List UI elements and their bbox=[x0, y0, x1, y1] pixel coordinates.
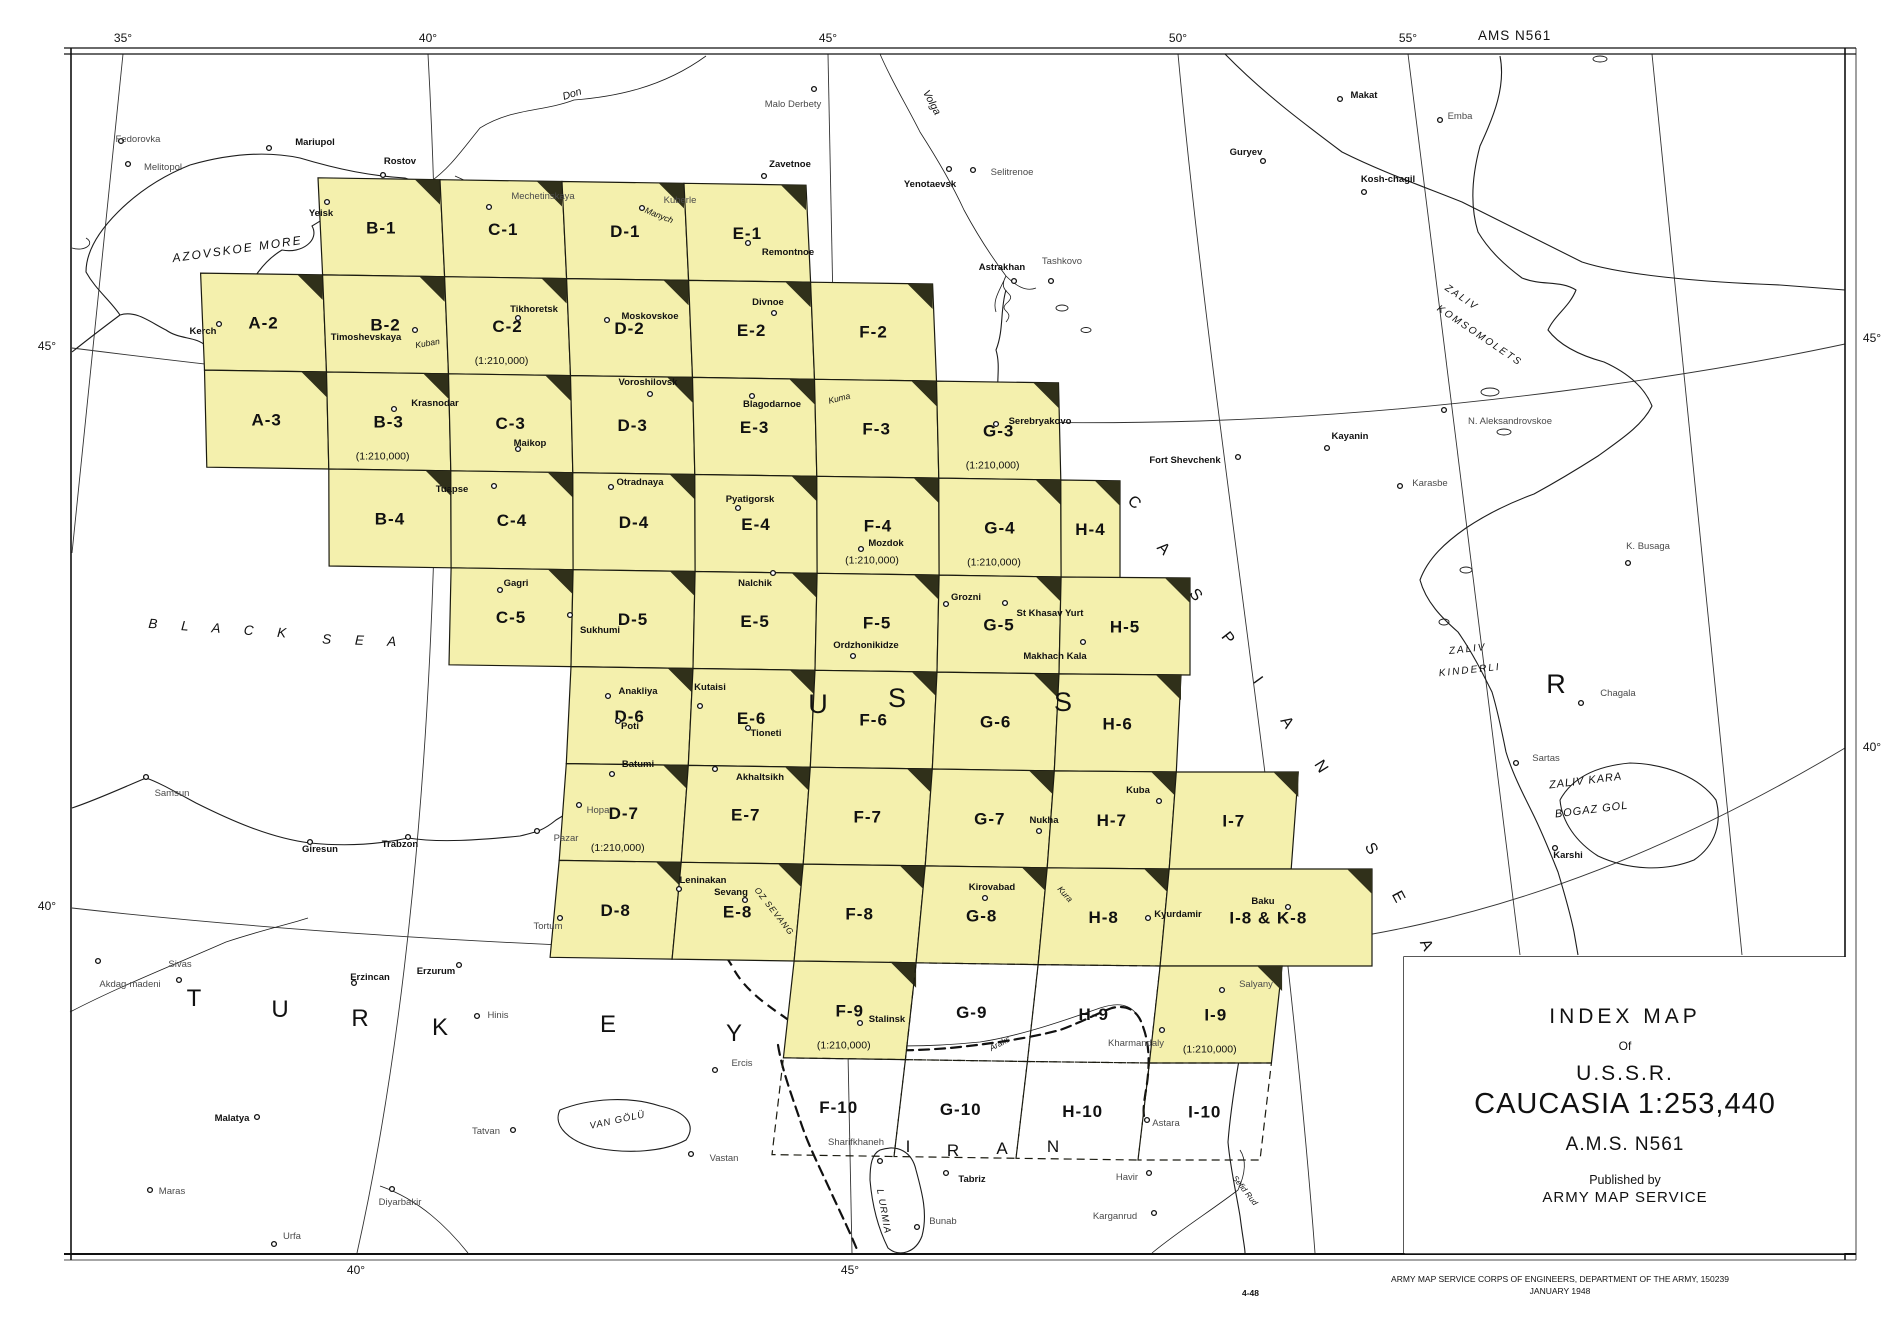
region-letter-caspian: E bbox=[1388, 888, 1408, 905]
region-letter-caspian: P bbox=[1218, 629, 1238, 648]
index-cell-label-D-3: D-3 bbox=[617, 416, 647, 435]
index-cell-label-F-9: F-9 bbox=[836, 1001, 865, 1020]
region-letter-turkey: E bbox=[600, 1011, 616, 1038]
region-letter-turkey: Y bbox=[726, 1020, 742, 1047]
index-cell-label-E-7: E-7 bbox=[731, 806, 760, 825]
city-label-Maikop: Maikop bbox=[514, 438, 547, 449]
sea-label-AZOVSKOE MORE: AZOVSKOE MORE bbox=[170, 233, 303, 265]
index-cell-label-F-5: F-5 bbox=[863, 614, 892, 633]
scale-note-C-2: (1:210,000) bbox=[475, 355, 529, 367]
region-letter-caspian: A bbox=[1277, 713, 1297, 732]
index-cell-label-D-8: D-8 bbox=[600, 901, 630, 920]
island bbox=[1593, 56, 1607, 62]
index-cell-label-E-6: E-6 bbox=[737, 709, 766, 728]
city-dot-Kuberle bbox=[640, 206, 645, 211]
region-letter-iran: R bbox=[947, 1141, 959, 1160]
river-don bbox=[430, 56, 706, 182]
index-cell-label-H-10: H-10 bbox=[1062, 1102, 1103, 1121]
city-label-Kutaisi: Kutaisi bbox=[694, 682, 726, 693]
index-cell-label-G-8: G-8 bbox=[966, 906, 997, 925]
region-letter-ussr: S bbox=[1054, 687, 1072, 717]
city-label-Bunab: Bunab bbox=[929, 1216, 956, 1227]
island bbox=[1497, 429, 1511, 435]
sea-label-KINDERLI: KINDERLI bbox=[1438, 662, 1501, 679]
city-label-Serebryakovo: Serebryakovo bbox=[1009, 416, 1072, 427]
city-label-Samsun: Samsun bbox=[155, 788, 190, 799]
city-dot-Havir bbox=[1147, 1171, 1152, 1176]
city-dot-Karganrud bbox=[1152, 1211, 1157, 1216]
region-letter-caspian: N bbox=[1311, 757, 1332, 776]
city-label-Pazar: Pazar bbox=[554, 833, 579, 844]
city-dot-Grozni bbox=[944, 602, 949, 607]
city-dot-Sukhumi bbox=[568, 613, 573, 618]
meridian-35 bbox=[72, 54, 123, 553]
index-cell-label-F-6: F-6 bbox=[859, 711, 888, 730]
city-label-Chagala: Chagala bbox=[1600, 688, 1636, 699]
city-dot-Divnoe bbox=[772, 311, 777, 316]
city-label-Kerch: Kerch bbox=[190, 326, 217, 337]
city-label-Maras: Maras bbox=[159, 1186, 186, 1197]
city-dot-Stalinsk bbox=[858, 1021, 863, 1026]
city-dot-Kerch bbox=[217, 322, 222, 327]
city-dot-Otradnaya bbox=[609, 485, 614, 490]
graticule-label-right: 45° bbox=[1863, 331, 1881, 345]
city-label-St Khasav Yurt: St Khasav Yurt bbox=[1017, 608, 1085, 619]
sea-label-KOMSOMOLETS: KOMSOMOLETS bbox=[1435, 303, 1524, 368]
city-label-Baku: Baku bbox=[1251, 896, 1274, 907]
graticule-label-top: 50° bbox=[1169, 31, 1187, 45]
title-published-by: Published by bbox=[1404, 1173, 1846, 1187]
region-letter-caspian: I bbox=[1249, 674, 1265, 688]
city-dot-Tatvan bbox=[511, 1128, 516, 1133]
city-dot-Bunab bbox=[915, 1225, 920, 1230]
graticule-label-left: 45° bbox=[38, 339, 56, 353]
city-label-Tortum: Tortum bbox=[533, 921, 562, 932]
city-dot-Fort Shevchenk bbox=[1236, 455, 1241, 460]
city-dot-Ercis bbox=[713, 1068, 718, 1073]
index-cell-label-G-6: G-6 bbox=[980, 712, 1011, 731]
city-dot-Blagodarnoe bbox=[750, 394, 755, 399]
index-cell-label-F-4: F-4 bbox=[864, 517, 893, 536]
city-label-Melitopol: Melitopol bbox=[144, 162, 182, 173]
city-dot-Tuapse bbox=[492, 484, 497, 489]
city-label-Sukhumi: Sukhumi bbox=[580, 625, 620, 636]
city-dot-Nalchik bbox=[771, 571, 776, 576]
index-cell-label-I-7: I-7 bbox=[1222, 812, 1245, 831]
index-cell-label-D-7: D-7 bbox=[609, 804, 639, 823]
index-cell-label-I-8 & K-8: I-8 & K-8 bbox=[1229, 909, 1307, 928]
city-label-Kuberle: Kuberle bbox=[664, 195, 697, 206]
region-letter-ussr: R bbox=[1546, 669, 1566, 699]
index-cell-label-G-7: G-7 bbox=[974, 809, 1005, 828]
graticule-label-top: 45° bbox=[819, 31, 837, 45]
city-dot-Poti bbox=[616, 719, 621, 724]
city-label-Fedorovka: Fedorovka bbox=[116, 134, 162, 145]
city-dot-St Khasav Yurt bbox=[1003, 601, 1008, 606]
city-dot-Selitrenoe bbox=[971, 168, 976, 173]
graticule-label-left: 40° bbox=[38, 899, 56, 913]
city-dot-Makat bbox=[1338, 97, 1343, 102]
city-label-Urfa: Urfa bbox=[283, 1231, 302, 1242]
index-cell-label-H-8: H-8 bbox=[1088, 908, 1118, 927]
city-label-Fort Shevchenk: Fort Shevchenk bbox=[1149, 455, 1221, 466]
city-dot-Mariupol bbox=[267, 146, 272, 151]
fineprint-line1: ARMY MAP SERVICE CORPS OF ENGINEERS, DEP… bbox=[1330, 1274, 1790, 1284]
city-dot-Krasnodar bbox=[392, 407, 397, 412]
city-dot-Guryev bbox=[1261, 159, 1266, 164]
region-letter-iran: A bbox=[996, 1139, 1008, 1158]
sea-label-S E A: S E A bbox=[322, 632, 406, 650]
index-cell-label-E-8: E-8 bbox=[723, 903, 752, 922]
city-dot-Nukha bbox=[1037, 829, 1042, 834]
graticule-label-top: 40° bbox=[419, 31, 437, 45]
index-cell-label-H-4: H-4 bbox=[1075, 520, 1105, 539]
index-map-screenshot: 35°40°45°50°55°40°45°45°40°45°40° B-1C-1… bbox=[0, 0, 1900, 1325]
index-cell-label-F-8: F-8 bbox=[845, 904, 874, 923]
city-label-Sartas: Sartas bbox=[1532, 753, 1560, 764]
city-dot-Makhach Kala bbox=[1081, 640, 1086, 645]
island bbox=[1081, 328, 1091, 333]
river-sefidrud bbox=[1152, 1150, 1244, 1253]
scale-note-I-9: (1:210,000) bbox=[1183, 1044, 1237, 1056]
city-dot-Batumi bbox=[610, 772, 615, 777]
city-dot-Zavetnoe bbox=[762, 174, 767, 179]
city-label-Mechetinskaya: Mechetinskaya bbox=[511, 191, 575, 202]
region-letter-turkey: R bbox=[351, 1005, 368, 1032]
city-dot-Tabriz bbox=[944, 1171, 949, 1176]
meridian-55 bbox=[1408, 54, 1520, 955]
lake-van bbox=[558, 1100, 690, 1152]
city-label-Tatvan: Tatvan bbox=[472, 1126, 500, 1137]
coast-caspian-east bbox=[1420, 56, 1652, 955]
city-dot-Urfa bbox=[272, 1242, 277, 1247]
city-dot-Voroshilovsk bbox=[648, 392, 653, 397]
city-label-Giresun: Giresun bbox=[302, 844, 338, 855]
city-dot-Tortum bbox=[558, 916, 563, 921]
city-label-Malo Derbety: Malo Derbety bbox=[765, 99, 822, 110]
region-letter-turkey: K bbox=[432, 1014, 448, 1041]
index-cell-label-D-4: D-4 bbox=[619, 513, 649, 532]
city-label-Astrakhan: Astrakhan bbox=[979, 262, 1026, 273]
city-label-Mozdok: Mozdok bbox=[868, 538, 904, 549]
city-label-Ercis: Ercis bbox=[731, 1058, 752, 1069]
city-dot-Karasbe bbox=[1398, 484, 1403, 489]
index-cell-label-G-10: G-10 bbox=[940, 1100, 982, 1119]
city-dot-Malo Derbety bbox=[812, 87, 817, 92]
sea-label-VAN GÖLÜ: VAN GÖLÜ bbox=[589, 1109, 647, 1132]
city-dot-Yeisk bbox=[325, 200, 330, 205]
city-dot-Baku bbox=[1286, 905, 1291, 910]
city-dot-N. Aleksandrovskoe bbox=[1442, 408, 1447, 413]
city-label-Kyurdamir: Kyurdamir bbox=[1154, 909, 1202, 920]
city-label-Sivas: Sivas bbox=[168, 959, 191, 970]
city-label-Pyatigorsk: Pyatigorsk bbox=[726, 494, 775, 505]
index-cell-label-B-1: B-1 bbox=[366, 218, 396, 237]
index-grid-layer: B-1C-1D-1E-1A-2B-2C-2(1:210,000)D-2E-2F-… bbox=[201, 178, 1372, 1160]
city-dot-Astara bbox=[1145, 1118, 1150, 1123]
city-label-Moskovskoe: Moskovskoe bbox=[621, 311, 678, 322]
city-dot-Samsun bbox=[144, 775, 149, 780]
meridian-60 bbox=[1652, 54, 1742, 955]
city-label-Malatya: Malatya bbox=[215, 1113, 251, 1124]
city-label-Voroshilovsk: Voroshilovsk bbox=[619, 377, 679, 388]
fineprint-code: 4-48 bbox=[1242, 1288, 1259, 1298]
index-cell-label-C-5: C-5 bbox=[496, 608, 526, 627]
city-dot-Ordzhonikidze bbox=[851, 654, 856, 659]
city-dot-Maras bbox=[148, 1188, 153, 1193]
city-dot-Diyarbakir bbox=[390, 1187, 395, 1192]
index-cell-label-I-9: I-9 bbox=[1204, 1006, 1227, 1025]
city-dot-Remontnoe bbox=[746, 241, 751, 246]
city-label-Vastan: Vastan bbox=[710, 1153, 739, 1164]
scale-note-D-7: (1:210,000) bbox=[591, 842, 645, 854]
city-label-Tikhoretsk: Tikhoretsk bbox=[510, 304, 559, 315]
city-dot-Kharmandaly bbox=[1160, 1028, 1165, 1033]
sheet-number-corner: AMS N561 bbox=[1478, 28, 1551, 43]
title-publisher: ARMY MAP SERVICE bbox=[1404, 1189, 1846, 1206]
scale-note-G-3: (1:210,000) bbox=[966, 460, 1020, 472]
index-cell-label-G-4: G-4 bbox=[984, 519, 1015, 538]
city-dot-Sevang bbox=[743, 898, 748, 903]
river-volga bbox=[880, 54, 1006, 276]
island bbox=[1460, 567, 1472, 573]
city-dot-Salyany bbox=[1220, 988, 1225, 993]
city-dot-Kyurdamir bbox=[1146, 916, 1151, 921]
city-dot-Kayanin bbox=[1325, 446, 1330, 451]
index-cell-label-G-5: G-5 bbox=[983, 616, 1014, 635]
title-of: Of bbox=[1404, 1039, 1846, 1053]
city-label-Nalchik: Nalchik bbox=[738, 578, 773, 589]
border-turkey-iran bbox=[778, 1045, 858, 1252]
index-cell-label-E-3: E-3 bbox=[740, 418, 769, 437]
index-cell-label-F-3: F-3 bbox=[862, 420, 891, 439]
city-dot-Kosh-chagil bbox=[1362, 190, 1367, 195]
index-cell-label-H-9: H-9 bbox=[1079, 1005, 1109, 1024]
region-letter-caspian: C bbox=[1124, 492, 1144, 512]
graticule-label-top: 55° bbox=[1399, 31, 1417, 45]
index-cell-label-B-3: B-3 bbox=[373, 412, 403, 431]
city-label-Emba: Emba bbox=[1448, 111, 1474, 122]
graticule-label-right: 40° bbox=[1863, 740, 1881, 754]
index-cell-label-I-10: I-10 bbox=[1188, 1103, 1221, 1122]
fineprint: ARMY MAP SERVICE CORPS OF ENGINEERS, DEP… bbox=[1230, 1274, 1790, 1296]
river-label-Don: Don bbox=[561, 85, 583, 102]
index-cell-label-H-7: H-7 bbox=[1097, 811, 1127, 830]
index-cell-label-F-7: F-7 bbox=[854, 808, 883, 827]
city-label-Guryev: Guryev bbox=[1230, 147, 1263, 158]
city-label-Kharmandaly: Kharmandaly bbox=[1108, 1038, 1164, 1049]
city-label-Stalinsk: Stalinsk bbox=[869, 1014, 906, 1025]
city-label-Timoshevskaya: Timoshevskaya bbox=[331, 332, 402, 343]
city-label-Leninakan: Leninakan bbox=[680, 875, 727, 886]
city-label-Akdag-madeni: Akdag-madeni bbox=[99, 979, 160, 990]
city-label-Havir: Havir bbox=[1116, 1172, 1138, 1183]
city-dot-Anakliya bbox=[606, 694, 611, 699]
city-label-Erzincan: Erzincan bbox=[350, 972, 390, 983]
city-dot-Hinis bbox=[475, 1014, 480, 1019]
city-label-Remontnoe: Remontnoe bbox=[762, 247, 814, 258]
sea-label-L URMIA: L URMIA bbox=[874, 1188, 893, 1235]
city-label-Divnoe: Divnoe bbox=[752, 297, 784, 308]
city-label-Poti: Poti bbox=[621, 721, 639, 732]
region-letter-iran: N bbox=[1047, 1137, 1059, 1156]
title-block: INDEX MAP Of U.S.S.R. CAUCASIA 1:253,440… bbox=[1404, 957, 1846, 1253]
city-label-Ordzhonikidze: Ordzhonikidze bbox=[833, 640, 898, 651]
city-dot-Pazar bbox=[535, 829, 540, 834]
city-dot-Kutaisi bbox=[698, 704, 703, 709]
city-label-K. Busaga: K. Busaga bbox=[1626, 541, 1671, 552]
city-label-Salyany: Salyany bbox=[1239, 979, 1273, 990]
city-label-Yenotaevsk: Yenotaevsk bbox=[904, 179, 957, 190]
city-dot-Pyatigorsk bbox=[736, 506, 741, 511]
city-dot-Sivas bbox=[177, 978, 182, 983]
index-cell-label-F-2: F-2 bbox=[859, 323, 888, 342]
region-letter-iran: I bbox=[906, 1137, 911, 1156]
region-letter-turkey: U bbox=[271, 996, 288, 1023]
city-label-Sharifkhaneh: Sharifkhaneh bbox=[828, 1137, 884, 1148]
city-label-Krasnodar: Krasnodar bbox=[411, 398, 459, 409]
city-label-Zavetnoe: Zavetnoe bbox=[769, 159, 811, 170]
city-label-Gagri: Gagri bbox=[504, 578, 529, 589]
city-label-Batumi: Batumi bbox=[622, 759, 654, 770]
coast-sivash bbox=[72, 238, 90, 249]
city-dot-Erzurum bbox=[457, 963, 462, 968]
coast-caspian-north bbox=[1225, 54, 1845, 290]
city-dot-Moskovskoe bbox=[605, 318, 610, 323]
city-label-Grozni: Grozni bbox=[951, 592, 981, 603]
city-label-Trabzon: Trabzon bbox=[382, 839, 419, 850]
city-label-Kayanin: Kayanin bbox=[1332, 431, 1369, 442]
city-label-Yeisk: Yeisk bbox=[309, 208, 334, 219]
title-ussr: U.S.S.R. bbox=[1404, 1062, 1846, 1086]
city-label-Diyarbakir: Diyarbakir bbox=[379, 1197, 422, 1208]
region-letter-caspian: S bbox=[1361, 840, 1381, 858]
sea-label-ZALIV: ZALIV bbox=[1447, 642, 1487, 657]
index-cell-label-H-5: H-5 bbox=[1110, 617, 1140, 636]
city-label-Hopa: Hopa bbox=[587, 805, 610, 816]
city-dot-Sartas bbox=[1514, 761, 1519, 766]
city-label-Tashkovo: Tashkovo bbox=[1042, 256, 1082, 267]
city-label-Akhaltsikh: Akhaltsikh bbox=[736, 772, 784, 783]
city-label-Blagodarnoe: Blagodarnoe bbox=[743, 399, 801, 410]
city-dot-Sharifkhaneh bbox=[878, 1159, 883, 1164]
city-dot-K. Busaga bbox=[1626, 561, 1631, 566]
city-label-Hinis: Hinis bbox=[487, 1010, 508, 1021]
city-label-Makhach Kala: Makhach Kala bbox=[1023, 651, 1087, 662]
fineprint-line2: JANUARY 1948 bbox=[1330, 1286, 1790, 1296]
city-dot-Vastan bbox=[689, 1152, 694, 1157]
index-cell-label-C-4: C-4 bbox=[497, 511, 527, 530]
city-dot-Emba bbox=[1438, 118, 1443, 123]
index-cell-label-B-4: B-4 bbox=[375, 509, 405, 528]
city-dot-Astrakhan bbox=[1012, 279, 1017, 284]
city-dot-Malatya bbox=[255, 1115, 260, 1120]
city-label-Kuba: Kuba bbox=[1126, 785, 1150, 796]
city-dot-Mozdok bbox=[859, 547, 864, 552]
city-label-Rostov: Rostov bbox=[384, 156, 417, 167]
city-dot-Gagri bbox=[498, 588, 503, 593]
title-index-map: INDEX MAP bbox=[1404, 1005, 1846, 1029]
region-letter-turkey: T bbox=[187, 985, 202, 1012]
scale-note-B-3: (1:210,000) bbox=[356, 450, 410, 462]
graticule-label-bottom: 45° bbox=[841, 1263, 859, 1277]
city-label-Karasbe: Karasbe bbox=[1412, 478, 1447, 489]
index-cell-label-H-6: H-6 bbox=[1102, 714, 1132, 733]
index-cell-label-E-2: E-2 bbox=[737, 321, 766, 340]
city-dot-Mechetinskaya bbox=[487, 205, 492, 210]
title-caucasia-scale: CAUCASIA 1:253,440 bbox=[1404, 1088, 1846, 1121]
sea-label-ZALIV KARA: ZALIV KARA bbox=[1547, 771, 1622, 792]
title-ams-number: A.M.S. N561 bbox=[1404, 1134, 1846, 1156]
city-dot-Hopa bbox=[577, 803, 582, 808]
city-dot-Serebryakovo bbox=[994, 422, 999, 427]
region-letter-ussr: S bbox=[888, 683, 906, 713]
meridian-50 bbox=[1178, 54, 1315, 1253]
index-cell-label-F-10: F-10 bbox=[819, 1098, 858, 1117]
city-label-N. Aleksandrovskoe: N. Aleksandrovskoe bbox=[1468, 416, 1552, 427]
island bbox=[1481, 388, 1499, 396]
index-cell-label-E-1: E-1 bbox=[733, 224, 762, 243]
city-label-Kosh-chagil: Kosh-chagil bbox=[1361, 174, 1415, 185]
index-cell-label-C-1: C-1 bbox=[488, 220, 518, 239]
city-label-Selitrenoe: Selitrenoe bbox=[991, 167, 1034, 178]
index-cell-label-A-2: A-2 bbox=[248, 314, 278, 333]
river-label-Volga: Volga bbox=[920, 88, 943, 117]
city-label-Nukha: Nukha bbox=[1029, 815, 1059, 826]
index-cell-label-C-3: C-3 bbox=[495, 414, 525, 433]
city-label-Karganrud: Karganrud bbox=[1093, 1211, 1137, 1222]
index-cell-label-E-4: E-4 bbox=[741, 515, 770, 534]
island bbox=[1056, 305, 1068, 311]
city-dot-Rostov bbox=[381, 173, 386, 178]
city-dot-Tashkovo bbox=[1049, 279, 1054, 284]
index-cell-label-E-5: E-5 bbox=[740, 612, 769, 631]
city-label-Mariupol: Mariupol bbox=[295, 137, 335, 148]
scale-note-F-4: (1:210,000) bbox=[845, 555, 899, 567]
city-label-Karshi: Karshi bbox=[1553, 850, 1583, 861]
city-dot-Yenotaevsk bbox=[947, 167, 952, 172]
city-dot-Melitopol bbox=[126, 162, 131, 167]
index-cell-label-A-3: A-3 bbox=[251, 411, 281, 430]
city-label-Astara: Astara bbox=[1152, 1118, 1180, 1129]
city-label-Sevang: Sevang bbox=[714, 887, 748, 898]
city-label-Tioneti: Tioneti bbox=[751, 728, 782, 739]
scale-note-G-4: (1:210,000) bbox=[967, 557, 1021, 569]
graticule-label-top: 35° bbox=[114, 31, 132, 45]
city-dot-Kirovabad bbox=[983, 896, 988, 901]
city-label-Erzurum: Erzurum bbox=[417, 966, 456, 977]
index-cell-label-D-5: D-5 bbox=[618, 610, 648, 629]
sea-label-B L A C K: B L A C K bbox=[148, 616, 297, 641]
index-cell-label-G-9: G-9 bbox=[956, 1003, 987, 1022]
region-letter-caspian: A bbox=[1416, 937, 1436, 954]
graticule-label-bottom: 40° bbox=[347, 1263, 365, 1277]
city-label-Tabriz: Tabriz bbox=[958, 1174, 986, 1185]
city-label-Tuapse: Tuapse bbox=[436, 484, 469, 495]
city-dot-Leninakan bbox=[677, 887, 682, 892]
city-dot-Akdag-madeni bbox=[96, 959, 101, 964]
scale-note-F-9: (1:210,000) bbox=[817, 1039, 871, 1051]
region-letter-caspian: A bbox=[1153, 539, 1173, 559]
city-label-Anakliya: Anakliya bbox=[618, 686, 658, 697]
city-label-Makat: Makat bbox=[1351, 90, 1379, 101]
index-cell-label-D-1: D-1 bbox=[610, 222, 640, 241]
sea-label-BOGAZ GOL: BOGAZ GOL bbox=[1554, 800, 1629, 821]
city-dot-Akhaltsikh bbox=[713, 767, 718, 772]
city-label-Otradnaya: Otradnaya bbox=[617, 477, 665, 488]
region-letter-ussr: U bbox=[808, 689, 828, 719]
city-dot-Chagala bbox=[1579, 701, 1584, 706]
